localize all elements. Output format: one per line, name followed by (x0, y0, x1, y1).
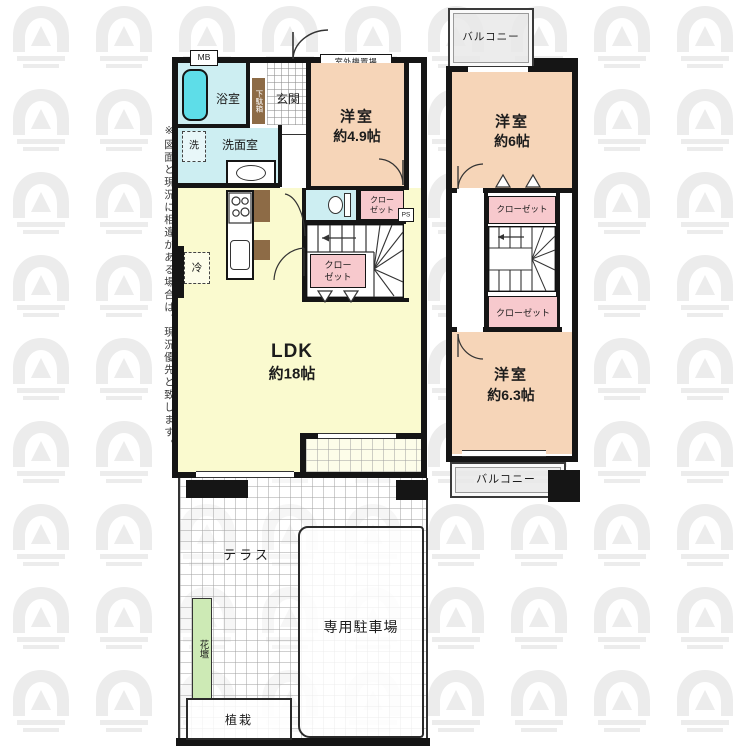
room6-name: 洋室 (495, 113, 529, 130)
hall-door-arc-upper (283, 192, 307, 238)
terrace-pillar-right (396, 480, 428, 500)
room49-door-arc (378, 158, 404, 186)
washer-label: 洗 (189, 140, 199, 152)
balcony-bottom-label: バルコニー (476, 474, 536, 487)
hall-closet-line1: クロー (324, 260, 351, 270)
balcony-top-label: バルコニー (462, 31, 519, 43)
bathroom-label: 浴室 (216, 93, 240, 107)
terrace-label: テラス (223, 549, 271, 564)
shoe-cabinet-label: 下駄箱 (254, 90, 263, 113)
window-unit2-bottom (462, 450, 546, 457)
wall-washroom-right (278, 125, 282, 187)
wall-washroom-bottom (178, 183, 280, 188)
kitchen-wall-lower (254, 240, 270, 260)
stove-icon (228, 192, 252, 224)
ldk-corner-tiles (306, 439, 421, 472)
parking-label: 専用駐車場 (324, 619, 399, 635)
floor-plan: ※図面と現況に相違がある場合は、現況優先と致します。 テラス 専用駐車場 花壇 … (0, 0, 750, 750)
fridge-label: 冷 (192, 262, 203, 274)
wall-step-v (300, 433, 306, 478)
toilet-bowl (328, 196, 343, 214)
room49-name: 洋室 (340, 108, 374, 125)
hall-closet-hangers (312, 290, 366, 303)
entrance-label: 玄関 (276, 93, 300, 107)
kitchen-wall-upper (254, 190, 270, 222)
closet-upper-label: クローゼット (496, 205, 547, 215)
pillar-balcony-bottom (548, 470, 580, 502)
wall-room49-left (306, 63, 311, 190)
flower-bed-label: 花壇 (197, 640, 208, 659)
wall-stub-left (178, 246, 184, 298)
toilet-tank (344, 193, 351, 217)
washroom-label: 洗面室 (222, 139, 258, 153)
wall-room49-right (404, 63, 409, 190)
closet-ps-line1: クロー (370, 195, 394, 204)
hall-closet-line2: ゼット (324, 272, 351, 282)
ldk-name: LDK (271, 341, 313, 363)
bathtub (182, 69, 208, 121)
room6-closet-hangers (492, 174, 550, 188)
room63-name: 洋室 (494, 366, 528, 383)
room63-door-arc (456, 332, 484, 360)
wall-bath-right (246, 63, 250, 127)
planting-label: 植栽 (225, 714, 253, 728)
window-step (318, 433, 396, 439)
closet-ps-line2: ゼット (370, 205, 394, 214)
ps-label: PS (402, 211, 411, 218)
vanity-sink (236, 165, 266, 181)
mb-label: MB (198, 53, 211, 63)
room63-size: 約6.3帖 (487, 387, 534, 403)
terrace-pillar-left (186, 480, 248, 498)
window-ldk-bottom (196, 471, 294, 478)
ldk-door-arc (272, 246, 306, 282)
closet-lower-label: クローゼット (496, 308, 550, 318)
ldk-size: 約18帖 (269, 365, 316, 382)
room6-door-arc (456, 162, 484, 190)
room6-size: 約6帖 (494, 133, 530, 149)
kitchen-sink (230, 240, 250, 270)
room49-size: 約4.9帖 (333, 128, 380, 144)
stairs-unit2 (488, 226, 556, 292)
